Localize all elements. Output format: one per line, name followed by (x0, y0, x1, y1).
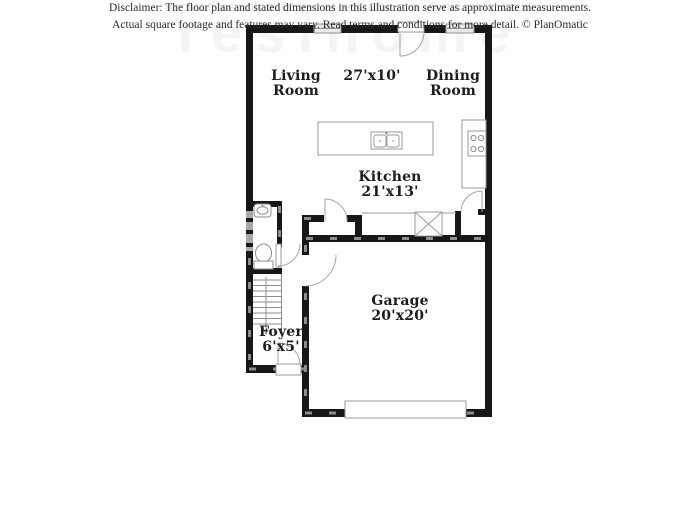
powder-room-sink (254, 204, 271, 217)
island-sink (371, 132, 402, 149)
dining-room-label: Dining Room (417, 69, 489, 99)
kitchen-hall-door (325, 199, 347, 221)
utility-closet (415, 212, 442, 236)
garage-overhead-door (345, 401, 466, 418)
toilet (254, 244, 273, 269)
living-room-name-line1: Living (260, 69, 332, 84)
foyer-dimensions: 6'x5' (247, 340, 315, 355)
powder-room-door (276, 244, 300, 267)
living-room-name-line2: Room (260, 84, 332, 99)
dining-room-name-line1: Dining (417, 69, 489, 84)
kitchen-dimensions: 21'x13' (340, 185, 440, 200)
dining-room-name-line2: Room (417, 84, 489, 99)
kitchen-counter (462, 120, 486, 188)
wall-left (246, 25, 253, 373)
wall-kitchen-b (347, 215, 356, 222)
mudroom-door (461, 191, 482, 212)
garage-dimensions: 20'x20' (350, 309, 450, 324)
kitchen-island (318, 122, 433, 155)
wall-kitchen-stub (355, 215, 362, 237)
kitchen-name: Kitchen (340, 170, 440, 185)
wall-mudroom (455, 211, 461, 237)
disclaimer-text: Disclaimer: The floor plan and stated di… (0, 0, 700, 34)
garage-entry-door (305, 255, 336, 286)
garage-label: Garage 20'x20' (350, 294, 450, 324)
disclaimer-line2: Actual square footage and features may v… (0, 17, 700, 34)
kitchen-label: Kitchen 21'x13' (340, 170, 440, 200)
window-left-wall (246, 211, 253, 251)
disclaimer-line1: Disclaimer: The floor plan and stated di… (0, 0, 700, 17)
foyer-name: Foyer (247, 325, 315, 340)
cooktop-stove (468, 131, 486, 156)
garage-name: Garage (350, 294, 450, 309)
floor-plan-page: resihome (0, 0, 700, 509)
foyer-label: Foyer 6'x5' (247, 325, 315, 355)
living-room-label: Living Room (260, 69, 332, 99)
living-dining-dimensions: 27'x10' (330, 69, 414, 84)
